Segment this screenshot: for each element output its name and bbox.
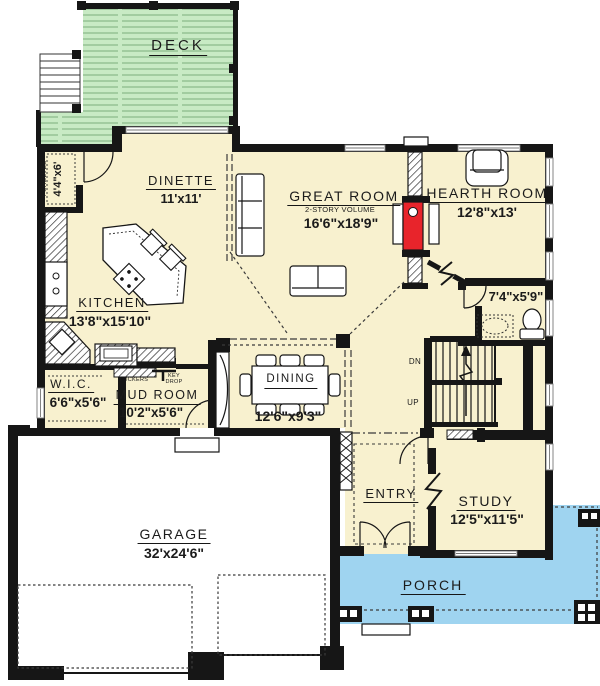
lockers-label: LOCKERS <box>120 378 148 384</box>
garage-step <box>175 438 219 452</box>
bath-dims: 7'4"x5'9" <box>489 290 544 303</box>
study-dims: 12'5"x11'5" <box>450 512 524 526</box>
wall-break <box>425 473 441 509</box>
insulated-wall <box>340 432 352 490</box>
porch-step <box>362 624 410 635</box>
key-drop-label: KEY DROP <box>165 373 182 386</box>
deck-stairs <box>40 50 81 113</box>
garage-dims: 32'x24'6" <box>144 546 204 560</box>
wic-label: W.I.C. <box>48 378 94 393</box>
hearth-room-dims: 12'8"x13' <box>457 205 517 219</box>
kitchen-label: KITCHEN <box>76 296 148 312</box>
great-room-label: GREAT ROOM <box>287 189 400 206</box>
great-room-dims: 16'6"x18'9" <box>304 216 378 230</box>
floor-plan-drawing <box>0 0 600 686</box>
deck-label: DECK <box>149 38 207 56</box>
range <box>45 262 67 306</box>
great-room-note: 2-STORY VOLUME <box>305 206 375 214</box>
garage-label: GARAGE <box>138 527 211 544</box>
toilet <box>523 309 541 331</box>
mud-room-label: MUD ROOM <box>114 389 201 405</box>
hearth-room-label: HEARTH ROOM <box>424 186 549 203</box>
dining-dims: 12'6"x9'3" <box>255 409 322 423</box>
dining-chair <box>256 355 276 366</box>
dinette-dims: 11'x11' <box>161 192 202 205</box>
entry-label: ENTRY <box>363 487 418 503</box>
sofa <box>236 174 264 256</box>
dinette-label: DINETTE <box>146 174 216 190</box>
kitchen-sink <box>100 346 132 361</box>
stairs-up-label: UP <box>407 399 419 407</box>
wic-dims: 6'6"x5'6" <box>50 396 107 410</box>
dining-chair <box>329 374 340 396</box>
stairs-down-label: DN <box>409 358 421 366</box>
study-label: STUDY <box>457 494 516 511</box>
dining-chair <box>304 355 324 366</box>
lockers-bench <box>114 368 156 377</box>
pantry-dims: 4'4"x6' <box>52 152 64 206</box>
dining-chair <box>280 355 300 366</box>
kitchen-dims: 13'8"x15'10" <box>69 314 151 328</box>
dining-chair <box>240 374 251 396</box>
mud-room-dims: 10'2"x5'6" <box>119 406 183 420</box>
floor-plan: DECK DINETTE 11'x11' GREAT ROOM 2-STORY … <box>0 0 600 686</box>
pantry-label: 4 SHELVES <box>41 152 48 206</box>
dining-label: DINING <box>264 374 317 389</box>
deck-area <box>36 1 239 147</box>
porch-label: PORCH <box>401 578 466 595</box>
